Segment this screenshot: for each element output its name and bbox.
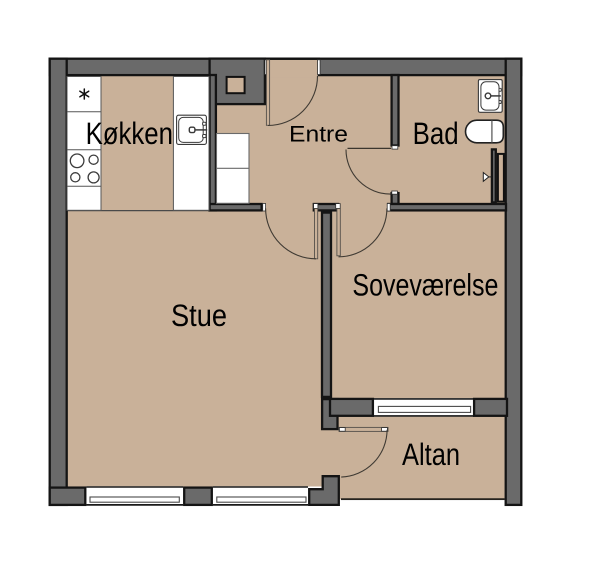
- svg-text:Stue: Stue: [171, 298, 227, 333]
- svg-text:Entre: Entre: [289, 122, 348, 147]
- svg-text:Bad: Bad: [413, 116, 459, 151]
- svg-text:Soveværelse: Soveværelse: [352, 268, 498, 303]
- svg-text:Køkken: Køkken: [86, 116, 173, 151]
- svg-text:Altan: Altan: [402, 437, 460, 472]
